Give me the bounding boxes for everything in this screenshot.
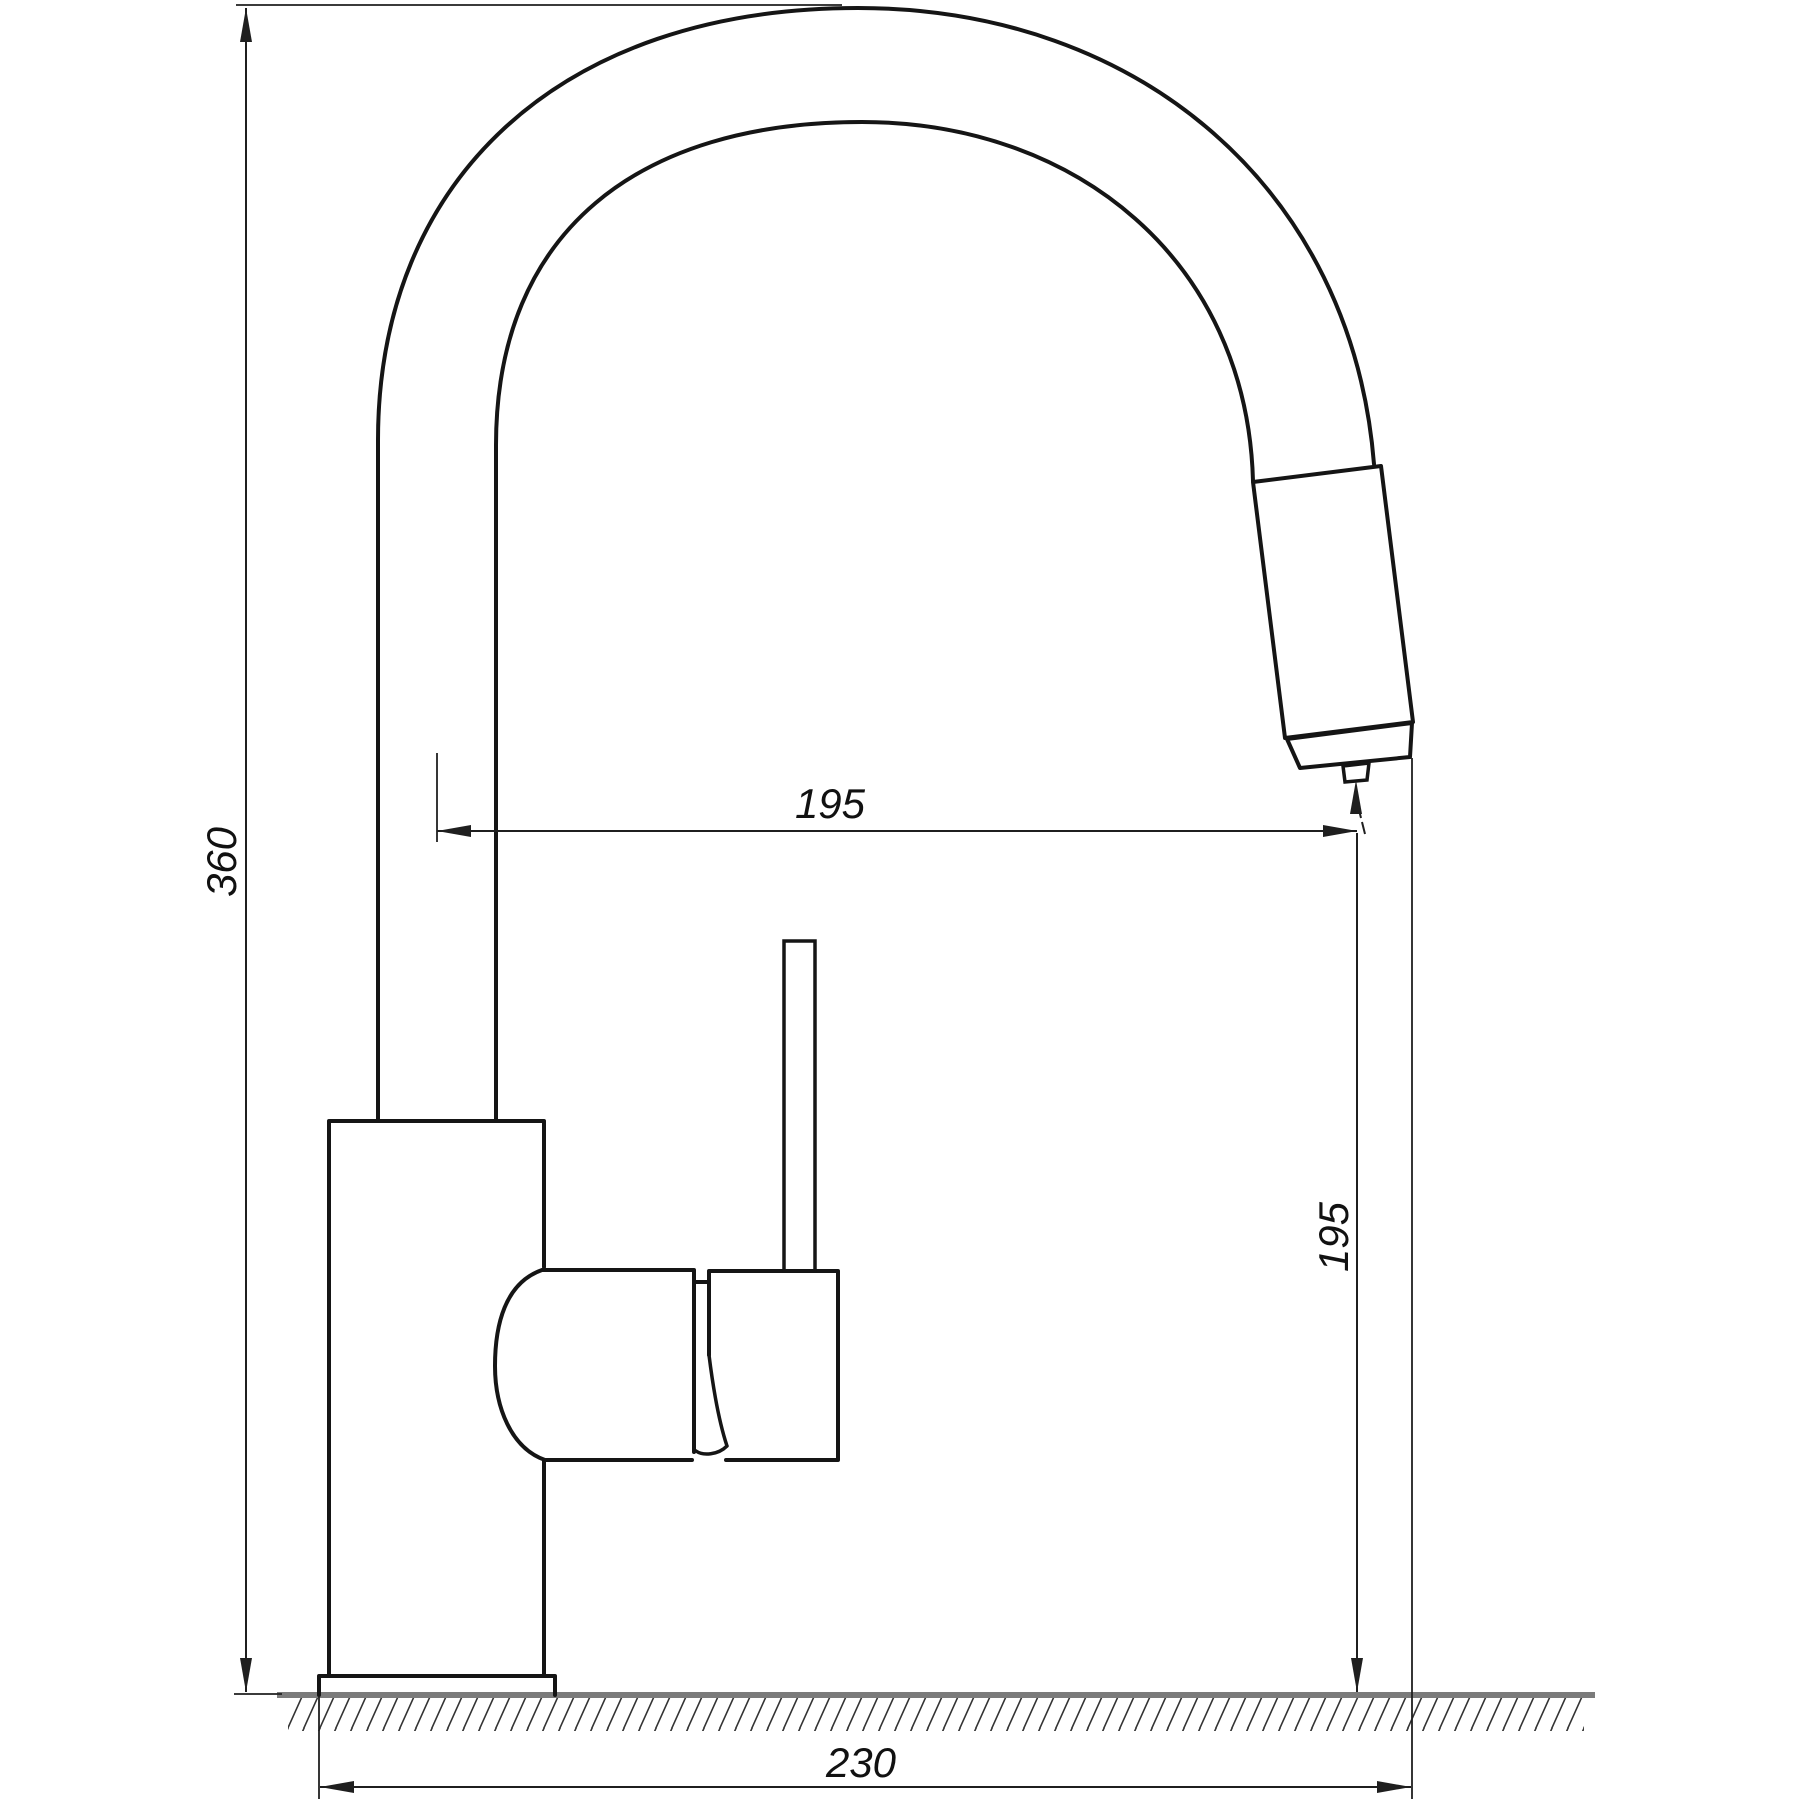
flow-direction-dashes [1358,806,1365,834]
arrowhead-right-base [1377,1781,1411,1793]
sprayer-nozzle [1343,763,1369,782]
sprayer-collar [1287,723,1412,768]
arrowhead-up-nozzle [1350,780,1362,814]
arrowhead-left [437,825,471,837]
arrowhead-up [240,8,252,42]
body-column [329,1121,544,1676]
spout-inner-profile [496,122,1253,1121]
spout-outer-profile [378,8,1374,1121]
cartridge-housing [495,1270,709,1460]
sprayer-head-knurl [1253,466,1413,738]
countertop-ground [277,1695,1595,1731]
handle-block [709,1271,838,1460]
ground-hatching [288,1698,1584,1731]
dim-label-total-height: 360 [198,826,245,897]
dim-label-spout-reach: 195 [795,780,866,827]
arrowhead-right [1323,825,1357,837]
technical-drawing-canvas: 360 195 195 230 [0,0,1800,1800]
arrowhead-left-base [320,1781,354,1793]
handle-seam-curve [696,1355,727,1454]
faucet-outline [319,8,1413,1695]
dim-label-outlet-clearance: 195 [1310,1201,1357,1272]
arrowhead-down-ground [1351,1658,1363,1692]
arrowhead-down [240,1658,252,1692]
faucet-dimension-drawing: 360 195 195 230 [0,0,1800,1800]
dimension-outlet-clearance: 195 [1310,780,1365,1692]
handle-lever [784,941,815,1271]
dimension-base-depth: 230 [319,758,1412,1799]
dimension-spout-reach: 195 [437,753,1357,842]
dim-label-base-depth: 230 [825,1739,897,1786]
